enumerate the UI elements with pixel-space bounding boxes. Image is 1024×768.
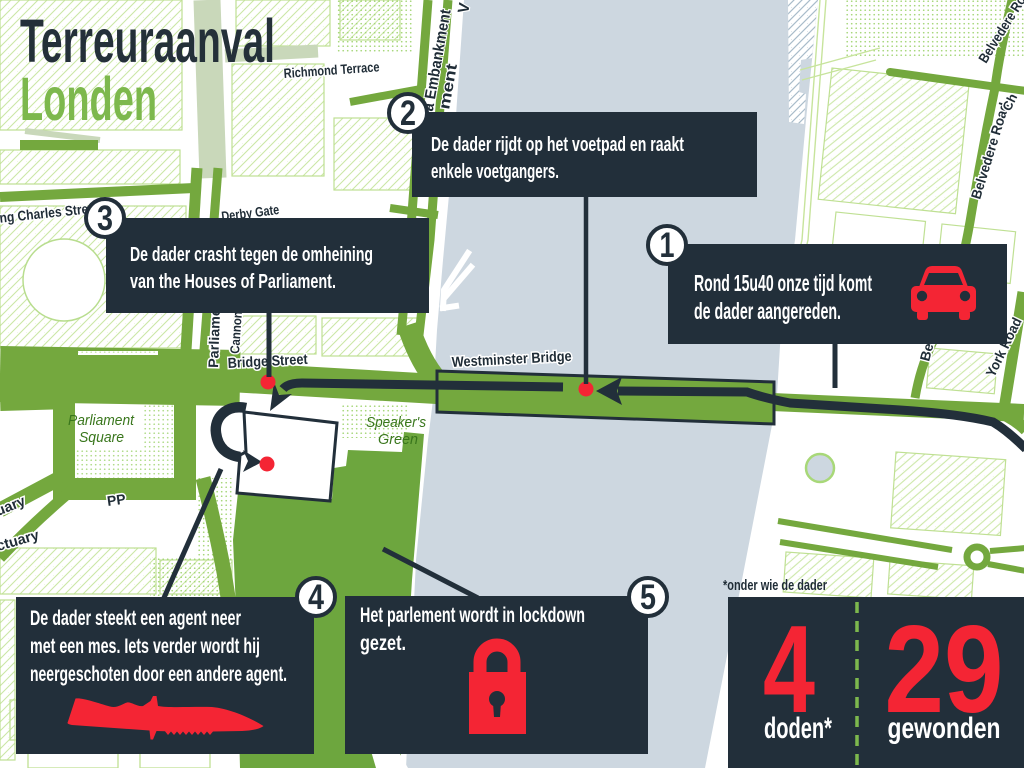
svg-text:2: 2 — [400, 94, 416, 133]
svg-text:Green: Green — [378, 432, 418, 448]
svg-text:1: 1 — [660, 226, 675, 265]
svg-text:gewonden: gewonden — [888, 712, 1001, 745]
svg-text:*onder wie de dader: *onder wie de dader — [723, 577, 827, 594]
svg-text:gezet.: gezet. — [360, 632, 406, 655]
svg-text:De dader steekt een agent neer: De dader steekt een agent neer — [30, 607, 241, 630]
svg-text:neergeschoten door een andere: neergeschoten door een andere agent. — [30, 663, 287, 686]
svg-text:Het parlement wordt in lockdow: Het parlement wordt in lockdown — [360, 604, 585, 627]
svg-text:3: 3 — [97, 199, 113, 238]
svg-text:De dader crasht tegen de omhei: De dader crasht tegen de omheining — [130, 244, 373, 266]
svg-text:doden*: doden* — [764, 712, 832, 745]
svg-text:5: 5 — [640, 578, 656, 617]
svg-text:Londen: Londen — [20, 65, 157, 133]
svg-text:4: 4 — [308, 578, 324, 617]
svg-text:PP: PP — [106, 491, 127, 509]
svg-text:enkele voetgangers.: enkele voetgangers. — [431, 161, 559, 183]
svg-text:Speaker's: Speaker's — [366, 415, 426, 431]
svg-text:van the Houses of Parliament.: van the Houses of Parliament. — [130, 271, 336, 293]
svg-text:met een mes. Iets verder wordt: met een mes. Iets verder wordt hij — [30, 635, 260, 658]
svg-text:Square: Square — [79, 430, 124, 446]
svg-text:Parliament: Parliament — [68, 413, 135, 429]
svg-text:de dader aangereden.: de dader aangereden. — [694, 298, 841, 324]
svg-text:De dader rijdt op het voetpad: De dader rijdt op het voetpad en raakt — [431, 134, 684, 156]
svg-text:Rond 15u40 onze tijd komt: Rond 15u40 onze tijd komt — [694, 270, 872, 296]
